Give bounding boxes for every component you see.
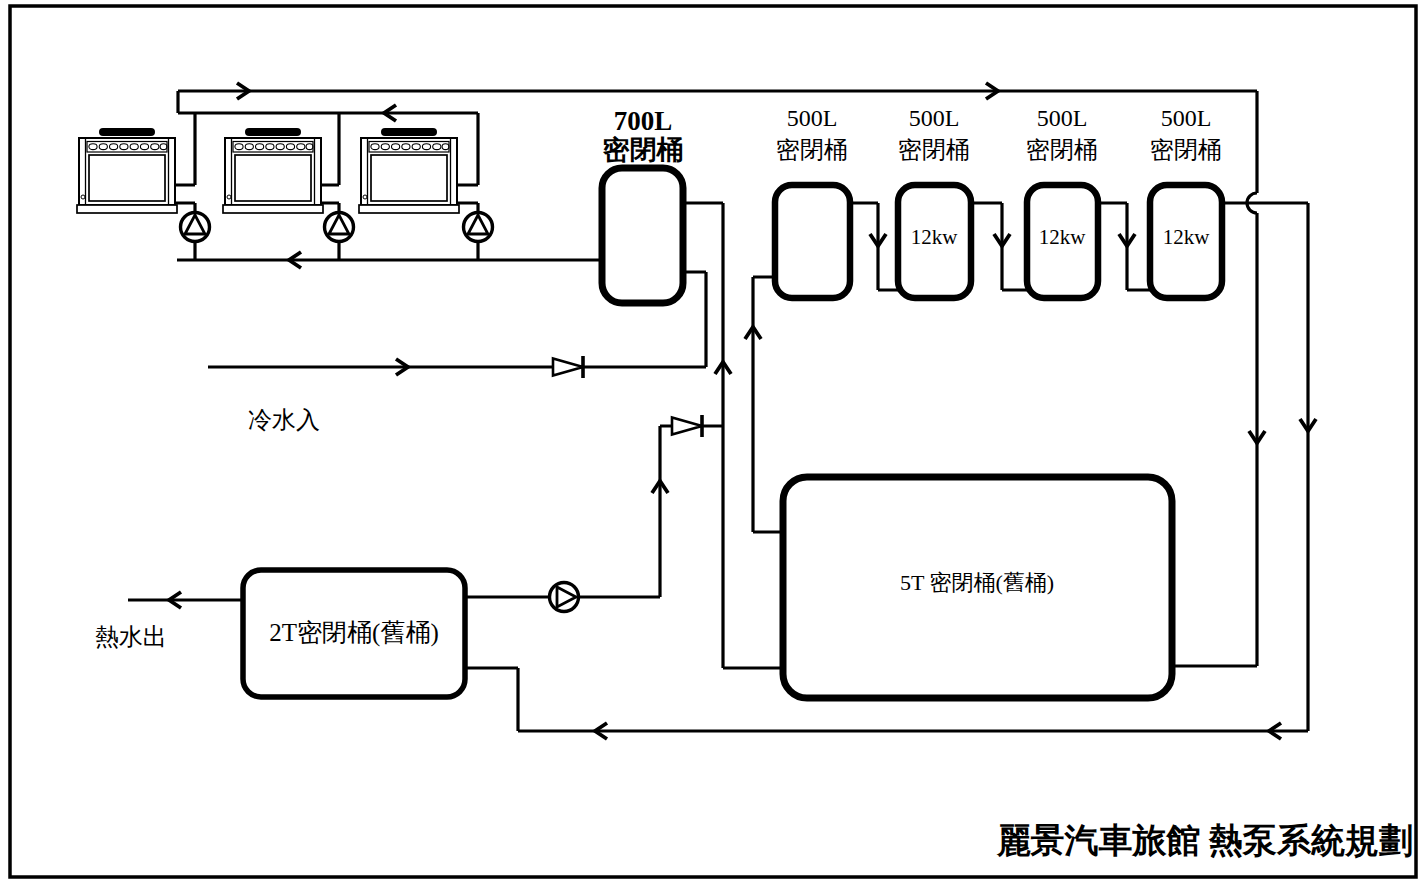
tank-500l-4-capacity-label: 500L bbox=[1161, 105, 1212, 131]
tank-2t-label: 2T密閉桶(舊桶) bbox=[269, 619, 438, 647]
tank-500l-1 bbox=[775, 185, 850, 298]
pump-icon-hp1 bbox=[181, 213, 210, 242]
tank-500l-4-type-label: 密閉桶 bbox=[1150, 137, 1222, 163]
pump-icon-hp3 bbox=[464, 213, 493, 242]
tank-500l-2-type-label: 密閉桶 bbox=[898, 137, 970, 163]
pump-icon-2t-loop bbox=[550, 583, 579, 612]
diagram-title: 麗景汽車旅館 熱泵系統規劃 bbox=[997, 822, 1414, 859]
heater-12kw-label-1: 12kw bbox=[911, 225, 959, 249]
tank-700l-type-label: 密閉桶 bbox=[603, 135, 684, 165]
hot-water-out-label: 熱水出 bbox=[95, 624, 167, 650]
heat-pump-unit-1 bbox=[77, 128, 177, 213]
heat-pump-unit-3 bbox=[359, 128, 459, 213]
tank-500l-2-capacity-label: 500L bbox=[909, 105, 960, 131]
pump-icon-hp2 bbox=[325, 213, 354, 242]
tank-700l-capacity-label: 700L bbox=[614, 106, 673, 136]
tank-500l-1-capacity-label: 500L bbox=[787, 105, 838, 131]
tank-5t-label: 5T 密閉桶(舊桶) bbox=[900, 570, 1054, 595]
heat-pump-unit-2 bbox=[223, 128, 323, 213]
tank-700l bbox=[602, 168, 683, 303]
tank-500l-3-type-label: 密閉桶 bbox=[1026, 137, 1098, 163]
heater-12kw-label-2: 12kw bbox=[1039, 225, 1087, 249]
heater-12kw-label-3: 12kw bbox=[1163, 225, 1211, 249]
heat-pump-system-diagram: 700L 密閉桶 500L 密閉桶 500L 密閉桶 500L 密閉桶 500L… bbox=[0, 0, 1426, 884]
tank-500l-3-capacity-label: 500L bbox=[1037, 105, 1088, 131]
tank-500l-1-type-label: 密閉桶 bbox=[776, 137, 848, 163]
cold-water-in-label: 冷水入 bbox=[248, 407, 320, 433]
